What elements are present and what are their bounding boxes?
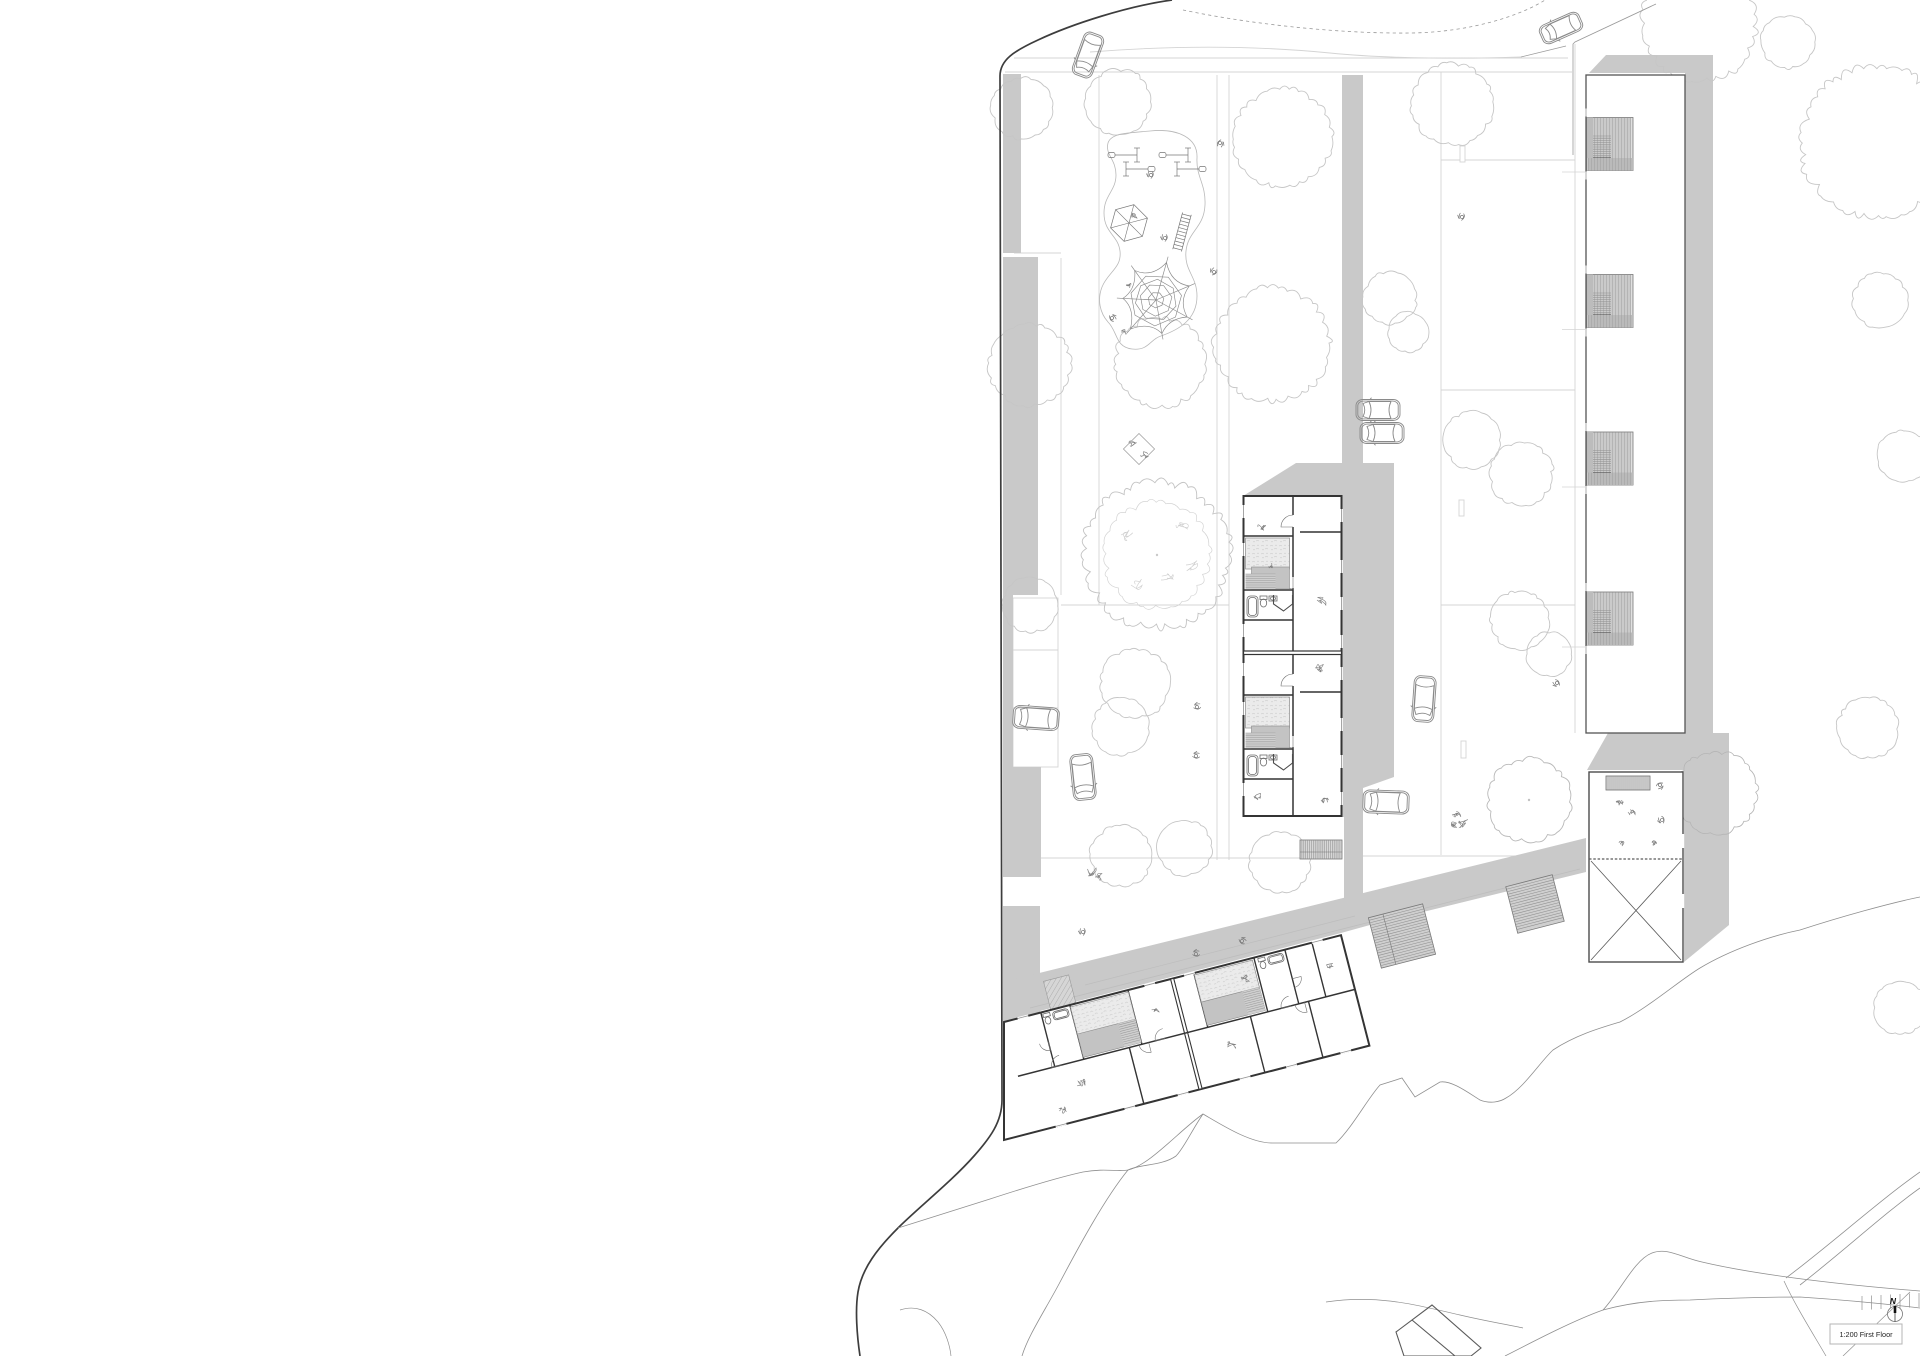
svg-text:N: N [1890,1296,1897,1306]
svg-text:1:200 First Floor: 1:200 First Floor [1839,1330,1893,1339]
